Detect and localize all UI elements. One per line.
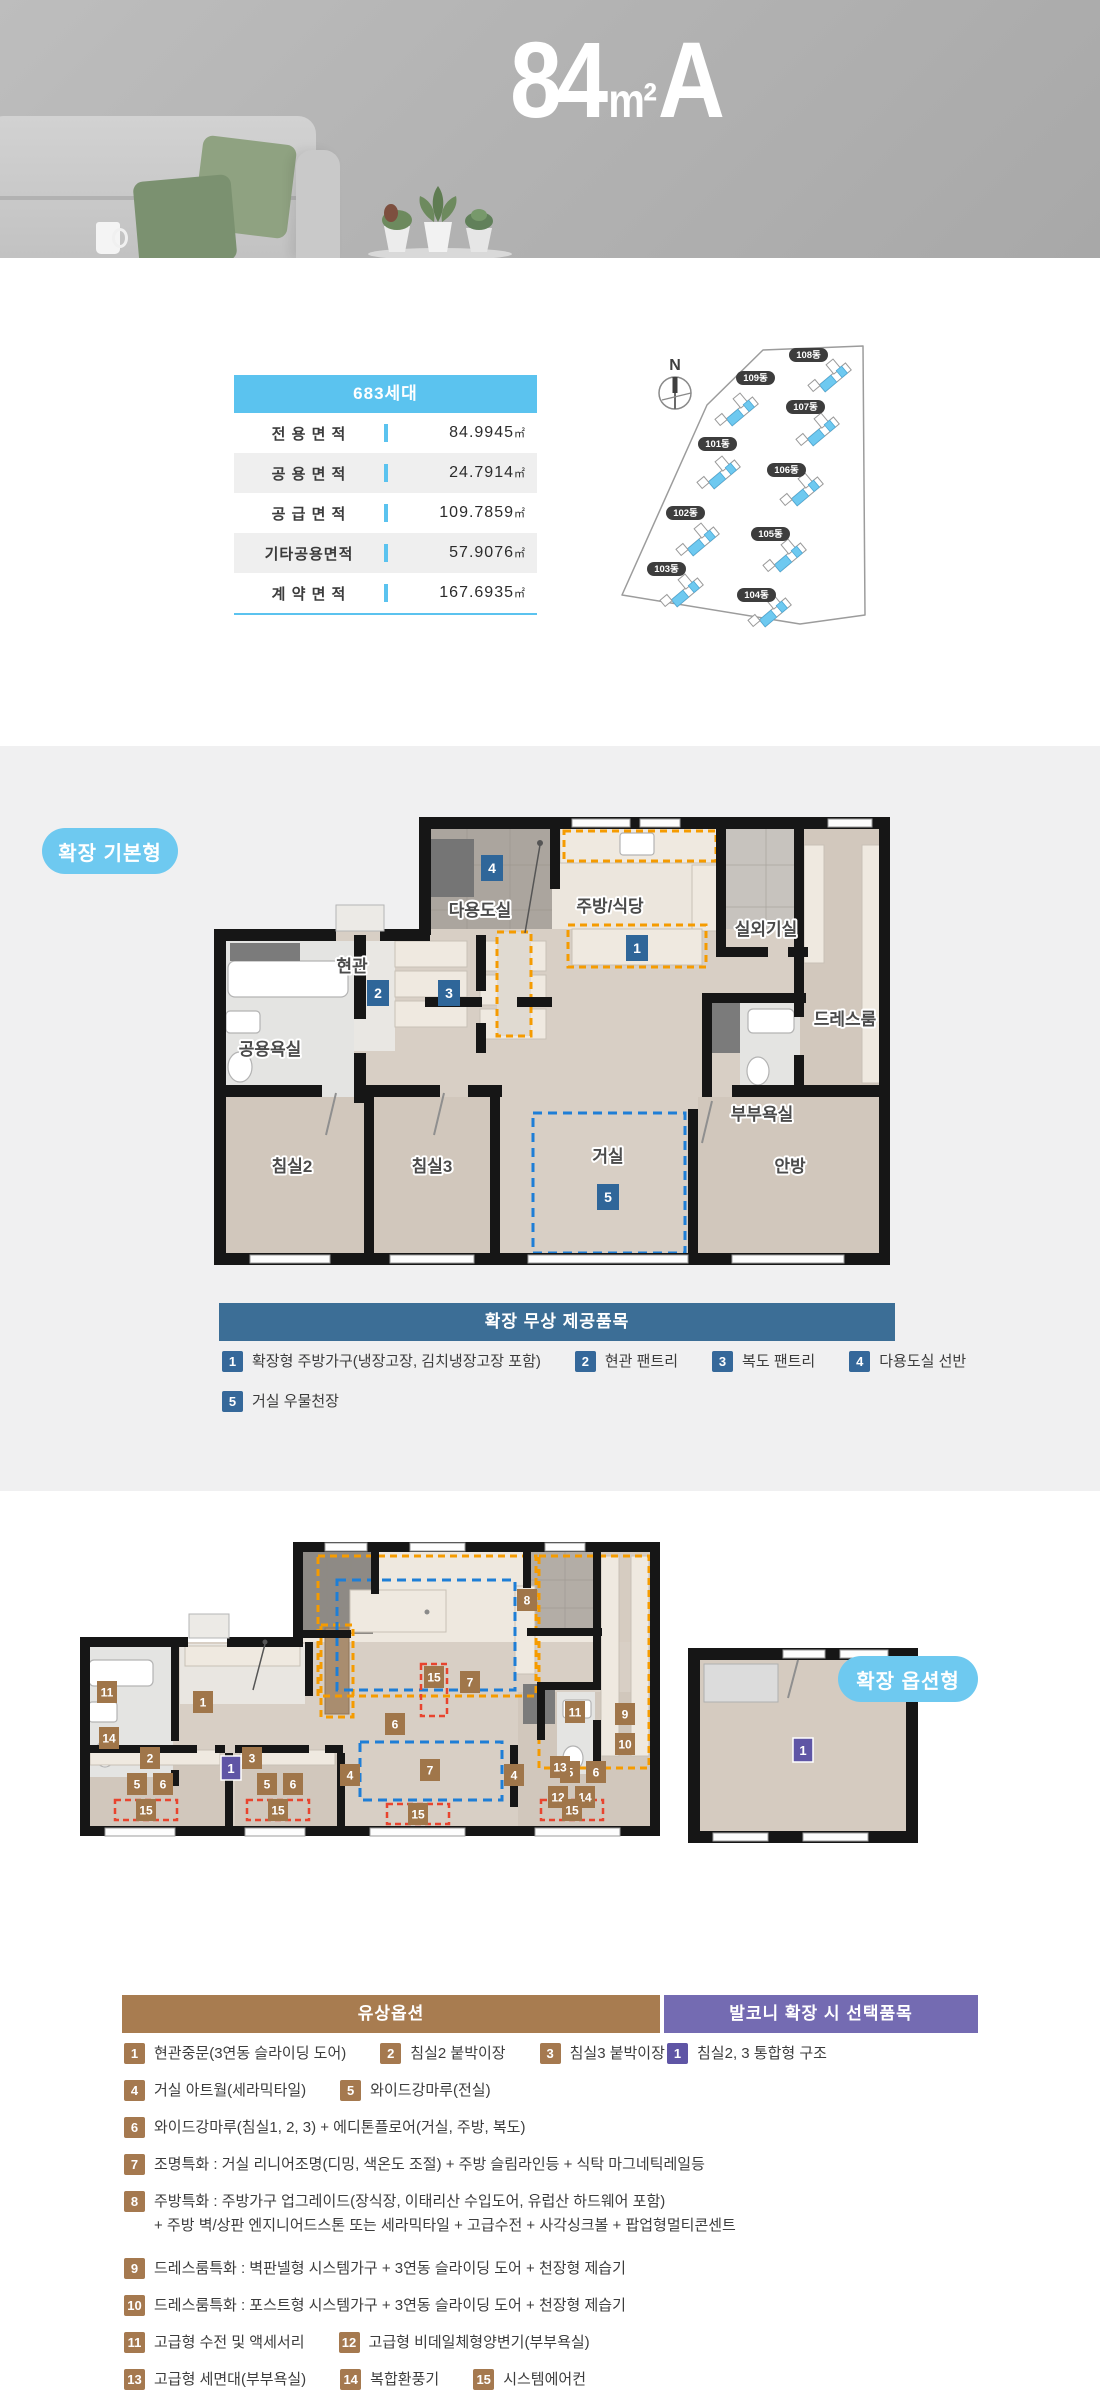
- row-value: 109.7859㎡: [388, 504, 537, 522]
- plan-badge-1: 1: [193, 1691, 213, 1713]
- svg-text:9: 9: [622, 1708, 629, 1722]
- svg-text:6: 6: [593, 1766, 600, 1780]
- floor-plan-option: 8 15 7 7 6 1 11 14 2 3 5 6 5 6 5 6 4 4 1…: [75, 1542, 675, 1842]
- item-text-line2: + 주방 벽/상판 엔지니어드스톤 또는 세라믹타일 + 고급수전 + 사각싱크…: [154, 2214, 736, 2238]
- plan-badge-3: 3: [242, 1747, 262, 1769]
- row-label: 공 급 면 적: [234, 503, 384, 524]
- paid-options-list: 1현관중문(3연동 슬라이딩 도어) 2침실2 붙박이장 3침실3 붙박이장 4…: [124, 2042, 736, 2405]
- room-label-dressroom: 드레스룸: [814, 1010, 877, 1029]
- svg-text:15: 15: [271, 1804, 285, 1818]
- section-option-expansion: 8 15 7 7 6 1 11 14 2 3 5 6 5 6 5 6 4 4 1…: [0, 1491, 1100, 2406]
- svg-text:6: 6: [160, 1778, 167, 1792]
- plants-image: [360, 182, 520, 258]
- item-text: 침실2, 3 통합형 구조: [697, 2042, 827, 2066]
- plan-badge-4: 4: [481, 855, 503, 881]
- list-item: 8 주방특화 : 주방가구 업그레이드(장식장, 이태리산 수입도어, 유럽산 …: [124, 2190, 736, 2238]
- item-text: 고급형 비데일체형양변기(부부욕실): [369, 2331, 590, 2355]
- unit-size: 84: [510, 19, 603, 140]
- room-label-utility: 다용도실: [449, 901, 512, 920]
- item-text: 침실3 붙박이장: [570, 2042, 665, 2066]
- svg-text:11: 11: [569, 1706, 582, 1720]
- room-label-outdoor-unit: 실외기실: [735, 920, 798, 939]
- list-item: 1현관중문(3연동 슬라이딩 도어): [124, 2042, 346, 2066]
- list-item: 14복합환풍기: [340, 2368, 439, 2392]
- plan-badge-13: 13: [550, 1756, 570, 1778]
- row-label: 계 약 면 적: [234, 583, 384, 604]
- room-label-entrance: 현관: [336, 957, 368, 976]
- list-row: 1침실2, 3 통합형 구조: [667, 2042, 827, 2066]
- plan-badge-9: 9: [615, 1703, 635, 1725]
- sofa-arm: [296, 150, 340, 258]
- room-label-bed2: 침실2: [272, 1156, 313, 1176]
- table-row: 기타공용면적 57.9076㎡: [234, 533, 537, 573]
- plan-badge-7: 7: [460, 1671, 480, 1693]
- room-label-bed3: 침실3: [412, 1156, 453, 1176]
- item-text: 복합환풍기: [370, 2368, 439, 2392]
- svg-text:5: 5: [604, 1189, 612, 1205]
- plan-badge-5: 5: [127, 1773, 147, 1795]
- svg-text:5: 5: [134, 1778, 141, 1792]
- unit: ㎡: [514, 588, 525, 600]
- plan-badge-4: 4: [340, 1764, 360, 1786]
- list-row: 1현관중문(3연동 슬라이딩 도어) 2침실2 붙박이장 3침실3 붙박이장: [124, 2042, 736, 2066]
- svg-text:1: 1: [227, 1761, 234, 1776]
- list-item: 4다용도실 선반: [849, 1350, 966, 1374]
- item-number-badge: 5: [340, 2080, 361, 2101]
- plan-badge-15: 15: [562, 1799, 582, 1821]
- floor-plan-basic: 다용도실 주방/식당 실외기실 드레스룸 현관 공용욕실 부부욕실 침실2 침실…: [140, 815, 890, 1275]
- section-basic-expansion: 확장 기본형: [0, 746, 1100, 1491]
- row-label: 공 용 면 적: [234, 463, 384, 484]
- compass-icon: N: [659, 357, 691, 409]
- plan-badge-5: 5: [597, 1184, 619, 1210]
- plan-badge-11: 11: [565, 1701, 585, 1723]
- item-text: 와이드강마루(침실1, 2, 3) + 에디톤플로어(거실, 주방, 복도): [154, 2116, 525, 2140]
- value: 109.7859: [439, 504, 514, 521]
- svg-text:14: 14: [102, 1732, 116, 1746]
- list-item: 9드레스룸특화 : 벽판넬형 시스템가구 + 3연동 슬라이딩 도어 + 천장형…: [124, 2257, 626, 2281]
- list-item: 5거실 우물천장: [222, 1390, 339, 1414]
- list-item: 11고급형 수전 및 액세서리: [124, 2331, 305, 2355]
- svg-text:6: 6: [290, 1778, 297, 1792]
- balcony-options-header: 발코니 확장 시 선택품목: [664, 1995, 978, 2033]
- item-text: 침실2 붙박이장: [410, 2042, 505, 2066]
- svg-text:6: 6: [392, 1718, 399, 1732]
- item-text: 드레스룸특화 : 포스트형 시스템가구 + 3연동 슬라이딩 도어 + 천장형 …: [154, 2294, 626, 2318]
- room-label-master-bath: 부부욕실: [731, 1105, 794, 1124]
- item-number-badge: 12: [339, 2332, 360, 2353]
- item-text: 현관중문(3연동 슬라이딩 도어): [154, 2042, 346, 2066]
- value: 167.6935: [439, 584, 514, 601]
- plan-badge-10: 10: [615, 1733, 635, 1755]
- table-row: 공 용 면 적 24.7914㎡: [234, 453, 537, 493]
- balcony-options-list: 1침실2, 3 통합형 구조: [667, 2042, 827, 2079]
- pillow: [132, 174, 237, 258]
- item-number-badge: 1: [667, 2043, 688, 2064]
- building-label: 105동: [758, 529, 783, 540]
- svg-text:1: 1: [799, 1743, 806, 1758]
- item-number-badge: 6: [124, 2117, 145, 2138]
- room-label-kitchen: 주방/식당: [576, 897, 644, 916]
- svg-text:15: 15: [427, 1671, 441, 1685]
- plan-badge-6: 6: [586, 1761, 606, 1783]
- building-label: 102동: [673, 508, 698, 519]
- row-label: 기타공용면적: [234, 543, 384, 564]
- item-number-badge: 2: [380, 2043, 401, 2064]
- hero-banner: 84m²A: [0, 0, 1100, 258]
- unit: ㎡: [514, 508, 525, 520]
- list-row: 11고급형 수전 및 액세서리 12고급형 비데일체형양변기(부부욕실): [124, 2331, 736, 2355]
- item-text-line1: 주방특화 : 주방가구 업그레이드(장식장, 이태리산 수입도어, 유럽산 하드…: [154, 2190, 736, 2214]
- svg-text:4: 4: [488, 860, 496, 876]
- item-number-badge: 3: [712, 1351, 733, 1372]
- row-value: 57.9076㎡: [388, 544, 537, 562]
- list-item: 5와이드강마루(전실): [340, 2079, 490, 2103]
- table-row: 전 용 면 적 84.9945㎡: [234, 413, 537, 453]
- value: 84.9945: [449, 424, 514, 441]
- svg-text:15: 15: [565, 1804, 579, 1818]
- item-text: 드레스룸특화 : 벽판넬형 시스템가구 + 3연동 슬라이딩 도어 + 천장형 …: [154, 2257, 626, 2281]
- item-number-badge: 8: [124, 2191, 145, 2212]
- svg-text:5: 5: [264, 1778, 271, 1792]
- unit-size-unit: m²: [608, 75, 655, 128]
- row-value: 24.7914㎡: [388, 464, 537, 482]
- svg-text:13: 13: [553, 1761, 567, 1775]
- value: 24.7914: [449, 464, 514, 481]
- unit-type-letter: A: [658, 19, 720, 140]
- plan-badge-merge-1: 1: [221, 1756, 241, 1780]
- list-row: 4거실 아트월(세라믹타일) 5와이드강마루(전실): [124, 2079, 736, 2103]
- svg-text:15: 15: [411, 1808, 425, 1822]
- building-label: 101동: [705, 439, 730, 450]
- svg-text:4: 4: [347, 1769, 354, 1783]
- plan-badge-11: 11: [97, 1681, 117, 1703]
- item-number-badge: 10: [124, 2295, 145, 2316]
- item-text: 복도 팬트리: [742, 1350, 815, 1374]
- item-text: 다용도실 선반: [879, 1350, 966, 1374]
- plan-badge-15: 15: [408, 1803, 428, 1825]
- list-item: 1확장형 주방가구(냉장고장, 김치냉장고장 포함): [222, 1350, 541, 1374]
- free-options-list: 1확장형 주방가구(냉장고장, 김치냉장고장 포함) 2현관 팬트리 3복도 팬…: [222, 1350, 966, 1427]
- room-label-living: 거실: [592, 1147, 623, 1166]
- row-value: 84.9945㎡: [388, 424, 537, 442]
- list-row: 7조명특화 : 거실 리니어조명(디밍, 색온도 조절) + 주방 슬림라인등 …: [124, 2153, 736, 2177]
- item-number-badge: 11: [124, 2332, 145, 2353]
- list-row: 10드레스룸특화 : 포스트형 시스템가구 + 3연동 슬라이딩 도어 + 천장…: [124, 2294, 736, 2318]
- free-options-header: 확장 무상 제공품목: [219, 1303, 895, 1341]
- list-item: 2침실2 붙박이장: [380, 2042, 505, 2066]
- plan-badge-3: 3: [438, 980, 460, 1006]
- plan-badge-merge-1: 1: [793, 1738, 813, 1762]
- building-label: 109동: [743, 373, 768, 384]
- item-text: 거실 아트월(세라믹타일): [154, 2079, 306, 2103]
- plan-badge-7: 7: [420, 1759, 440, 1781]
- item-number-badge: 13: [124, 2369, 145, 2390]
- badge-option-expansion: 확장 옵션형: [838, 1656, 978, 1702]
- svg-text:4: 4: [511, 1769, 518, 1783]
- list-item: 6와이드강마루(침실1, 2, 3) + 에디톤플로어(거실, 주방, 복도): [124, 2116, 525, 2140]
- unit: ㎡: [514, 548, 525, 560]
- list-item: 2현관 팬트리: [575, 1350, 678, 1374]
- unit: ㎡: [514, 468, 525, 480]
- item-number-badge: 15: [473, 2369, 494, 2390]
- item-number-badge: 2: [575, 1351, 596, 1372]
- item-text: 고급형 세면대(부부욕실): [154, 2368, 306, 2392]
- row-value: 167.6935㎡: [388, 584, 537, 602]
- item-text: 시스템에어컨: [503, 2368, 586, 2392]
- item-text: 현관 팬트리: [605, 1350, 678, 1374]
- item-text: 확장형 주방가구(냉장고장, 김치냉장고장 포함): [252, 1350, 541, 1374]
- list-row: 6와이드강마루(침실1, 2, 3) + 에디톤플로어(거실, 주방, 복도): [124, 2116, 736, 2140]
- plan-badge-14: 14: [99, 1727, 119, 1749]
- mug: [96, 222, 120, 254]
- list-row: 9드레스룸특화 : 벽판넬형 시스템가구 + 3연동 슬라이딩 도어 + 천장형…: [124, 2257, 736, 2281]
- item-number-badge: 9: [124, 2258, 145, 2279]
- building-label: 108동: [796, 350, 821, 361]
- item-text: 거실 우물천장: [252, 1390, 339, 1414]
- plan-badge-6: 6: [385, 1713, 405, 1735]
- unit-type-title: 84m²A: [0, 26, 1100, 134]
- plan-badge-2: 2: [367, 980, 389, 1006]
- svg-text:11: 11: [101, 1686, 114, 1700]
- list-item: 10드레스룸특화 : 포스트형 시스템가구 + 3연동 슬라이딩 도어 + 천장…: [124, 2294, 626, 2318]
- svg-text:2: 2: [147, 1752, 154, 1766]
- compass-label: N: [669, 357, 681, 374]
- item-number-badge: 1: [222, 1351, 243, 1372]
- building-label: 106동: [774, 465, 799, 476]
- svg-text:8: 8: [524, 1594, 531, 1608]
- item-number-badge: 5: [222, 1391, 243, 1412]
- item-text: 주방특화 : 주방가구 업그레이드(장식장, 이태리산 수입도어, 유럽산 하드…: [154, 2190, 736, 2238]
- item-number-badge: 4: [849, 1351, 870, 1372]
- plan-badge-15: 15: [424, 1666, 444, 1688]
- plan-badge-6: 6: [153, 1773, 173, 1795]
- plan-badge-6: 6: [283, 1773, 303, 1795]
- item-number-badge: 4: [124, 2080, 145, 2101]
- list-item: 7조명특화 : 거실 리니어조명(디밍, 색온도 조절) + 주방 슬림라인등 …: [124, 2153, 705, 2177]
- site-plan: N 108동 109동 107동 101동 106동 102: [600, 322, 940, 640]
- list-item: 3침실3 붙박이장: [540, 2042, 665, 2066]
- item-number-badge: 7: [124, 2154, 145, 2175]
- item-text: 고급형 수전 및 액세서리: [154, 2331, 305, 2355]
- table-row: 공 급 면 적 109.7859㎡: [234, 493, 537, 533]
- plan-badge-8: 8: [517, 1589, 537, 1611]
- room-label-common-bath: 공용욕실: [239, 1040, 302, 1059]
- plan-badge-5: 5: [257, 1773, 277, 1795]
- item-number-badge: 1: [124, 2043, 145, 2064]
- svg-text:15: 15: [139, 1804, 153, 1818]
- plan-badge-2: 2: [140, 1747, 160, 1769]
- svg-text:1: 1: [633, 940, 641, 956]
- list-item: 12고급형 비데일체형양변기(부부욕실): [339, 2331, 590, 2355]
- list-row: 8 주방특화 : 주방가구 업그레이드(장식장, 이태리산 수입도어, 유럽산 …: [124, 2190, 736, 2238]
- svg-text:3: 3: [249, 1752, 256, 1766]
- svg-text:10: 10: [618, 1738, 632, 1752]
- list-row: 5거실 우물천장: [222, 1390, 966, 1414]
- list-item: 1침실2, 3 통합형 구조: [667, 2042, 827, 2066]
- list-item: 3복도 팬트리: [712, 1350, 815, 1374]
- paid-options-header: 유상옵션: [122, 1995, 660, 2033]
- plan-badge-1: 1: [626, 935, 648, 961]
- area-table: 683세대 전 용 면 적 84.9945㎡ 공 용 면 적 24.7914㎡ …: [234, 375, 537, 615]
- plan-badge-4: 4: [504, 1764, 524, 1786]
- item-number-badge: 14: [340, 2369, 361, 2390]
- svg-text:2: 2: [374, 985, 382, 1001]
- list-row: 13고급형 세면대(부부욕실) 14복합환풍기 15시스템에어컨: [124, 2368, 736, 2392]
- building-label: 103동: [654, 564, 679, 575]
- row-label: 전 용 면 적: [234, 423, 384, 444]
- list-item: 13고급형 세면대(부부욕실): [124, 2368, 306, 2392]
- item-text: 와이드강마루(전실): [370, 2079, 490, 2103]
- svg-text:3: 3: [445, 985, 453, 1001]
- unit: ㎡: [514, 428, 525, 440]
- item-text: 조명특화 : 거실 리니어조명(디밍, 색온도 조절) + 주방 슬림라인등 +…: [154, 2153, 705, 2177]
- building-label: 107동: [793, 402, 818, 413]
- brochure-page: 84m²A 683세대 전 용 면 적 84.9945㎡ 공 용 면 적 24.…: [0, 0, 1100, 2406]
- svg-text:7: 7: [467, 1676, 474, 1690]
- value: 57.9076: [449, 544, 514, 561]
- plan-badge-15: 15: [136, 1799, 156, 1821]
- list-item: 4거실 아트월(세라믹타일): [124, 2079, 306, 2103]
- list-row: 1확장형 주방가구(냉장고장, 김치냉장고장 포함) 2현관 팬트리 3복도 팬…: [222, 1350, 966, 1374]
- room-label-master: 안방: [774, 1157, 806, 1176]
- building-label: 104동: [744, 590, 769, 601]
- area-table-header: 683세대: [234, 375, 537, 413]
- svg-text:7: 7: [427, 1764, 434, 1778]
- item-number-badge: 3: [540, 2043, 561, 2064]
- table-row: 계 약 면 적 167.6935㎡: [234, 573, 537, 613]
- list-item: 15시스템에어컨: [473, 2368, 586, 2392]
- svg-text:1: 1: [200, 1696, 207, 1710]
- plan-badge-15: 15: [268, 1799, 288, 1821]
